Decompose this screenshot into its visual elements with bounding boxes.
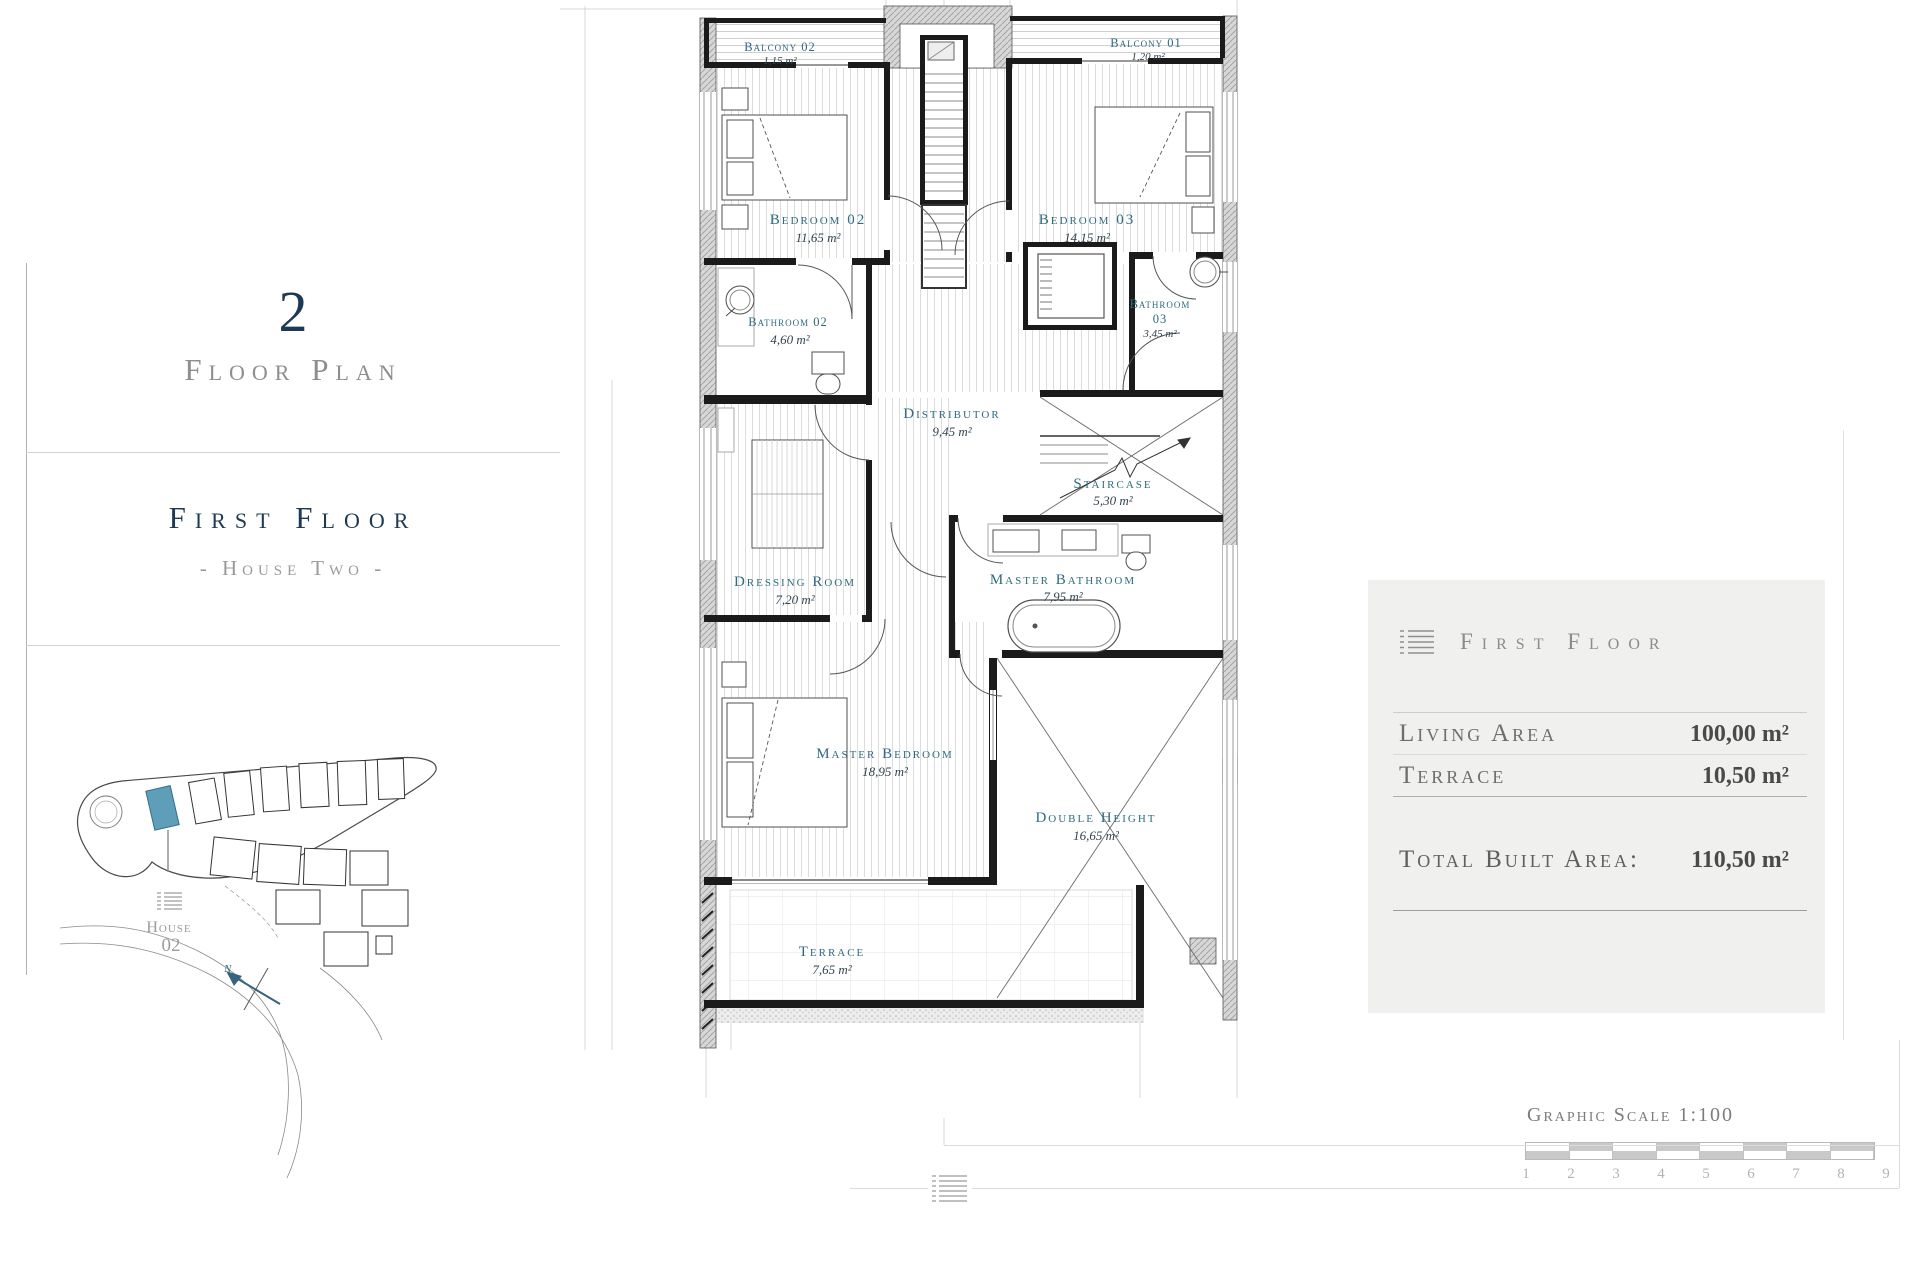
room-label-bathroom-03: Bathroom xyxy=(1130,297,1191,311)
room-label-dressing-room: Dressing Room xyxy=(734,574,856,590)
compass-n: N xyxy=(223,963,232,975)
plan-number: 2 xyxy=(26,278,560,345)
svg-text:18,95 m²: 18,95 m² xyxy=(862,764,909,779)
plan-label: Floor Plan xyxy=(26,352,560,388)
room-label-distributor: Distributor xyxy=(903,406,1000,422)
site-houses xyxy=(189,759,408,966)
svg-text:14,15 m²: 14,15 m² xyxy=(1064,230,1111,245)
frame-line-bottom xyxy=(850,1188,1899,1189)
room-label-double-height: Double Height xyxy=(1035,810,1156,826)
svg-text:1,15 m²: 1,15 m² xyxy=(763,55,797,67)
svg-text:4,60 m²: 4,60 m² xyxy=(770,332,810,347)
svg-text:1,20 m²: 1,20 m² xyxy=(1131,51,1165,63)
svg-text:9,45 m²: 9,45 m² xyxy=(932,424,972,439)
svg-text:11,65 m²: 11,65 m² xyxy=(796,230,842,245)
stair-shaft xyxy=(920,35,968,288)
frame-line-bottom-inner xyxy=(944,1145,1899,1146)
site-roads xyxy=(60,886,382,1178)
site-plan: House 02 N xyxy=(60,655,470,1185)
room-label-balcony-01: Balcony 01 xyxy=(1110,36,1181,50)
frame-line-right-inner xyxy=(1843,430,1844,1040)
list-icon xyxy=(157,893,182,909)
svg-text:7,20 m²: 7,20 m² xyxy=(775,592,815,607)
footer-list-icon xyxy=(928,1170,972,1208)
site-house-number: 02 xyxy=(162,935,181,956)
room-label-balcony-02: Balcony 02 xyxy=(744,40,815,54)
room-label-staircase: Staircase xyxy=(1073,476,1152,492)
graphic-scale-title: Graphic Scale 1:100 xyxy=(1527,1104,1734,1127)
summary-row-terrace: Terrace 10,50 m² xyxy=(1393,755,1807,796)
floor-subtitle: - House Two - xyxy=(26,556,560,581)
left-divider-2 xyxy=(26,645,560,646)
summary-panel: First Floor Living Area 100,00 m² Terrac… xyxy=(1368,580,1825,1013)
svg-text:03: 03 xyxy=(1153,312,1168,326)
frame-line-right xyxy=(1899,1040,1900,1188)
site-highlight-house-02 xyxy=(146,786,179,831)
svg-text:7,95 m²: 7,95 m² xyxy=(1043,589,1083,604)
room-label-bedroom-03: Bedroom 03 xyxy=(1039,212,1135,228)
summary-title: First Floor xyxy=(1460,629,1669,655)
room-label-terrace: Terrace xyxy=(799,944,866,960)
list-icon xyxy=(1400,628,1436,656)
site-house-label: House xyxy=(146,919,191,936)
summary-row-living-area: Living Area 100,00 m² xyxy=(1393,713,1807,754)
floor-title: First Floor xyxy=(26,500,560,536)
floor-plan: Balcony 02 1,15 m² Balcony 01 1,20 m² Be… xyxy=(540,0,1280,1230)
left-divider-1 xyxy=(26,452,560,453)
room-label-master-bathroom: Master Bathroom xyxy=(990,572,1136,588)
room-label-master-bedroom: Master Bedroom xyxy=(816,746,954,762)
svg-text:3,45 m²: 3,45 m² xyxy=(1142,328,1177,340)
summary-row-total: Total Built Area: 110,50 m² xyxy=(1393,839,1807,880)
svg-text:7,65 m²: 7,65 m² xyxy=(812,962,852,977)
svg-text:16,65 m²: 16,65 m² xyxy=(1073,828,1120,843)
closet-box xyxy=(1023,242,1117,330)
room-label-bathroom-02: Bathroom 02 xyxy=(748,315,827,329)
room-label-bedroom-02: Bedroom 02 xyxy=(770,212,866,228)
svg-text:5,30 m²: 5,30 m² xyxy=(1093,493,1133,508)
summary-table: Living Area 100,00 m² Terrace 10,50 m² T… xyxy=(1393,712,1807,911)
